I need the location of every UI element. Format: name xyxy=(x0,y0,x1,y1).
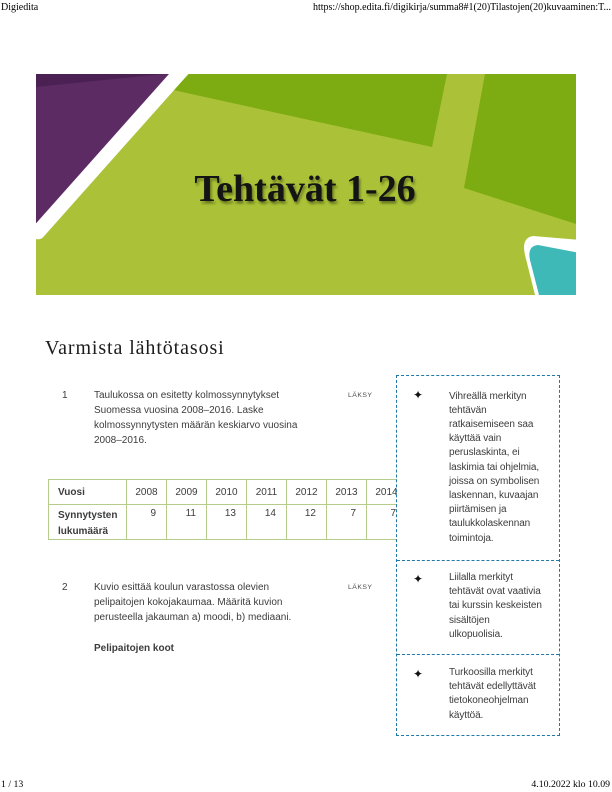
svg-text:Tehtävät 1-26: Tehtävät 1-26 xyxy=(194,168,415,210)
